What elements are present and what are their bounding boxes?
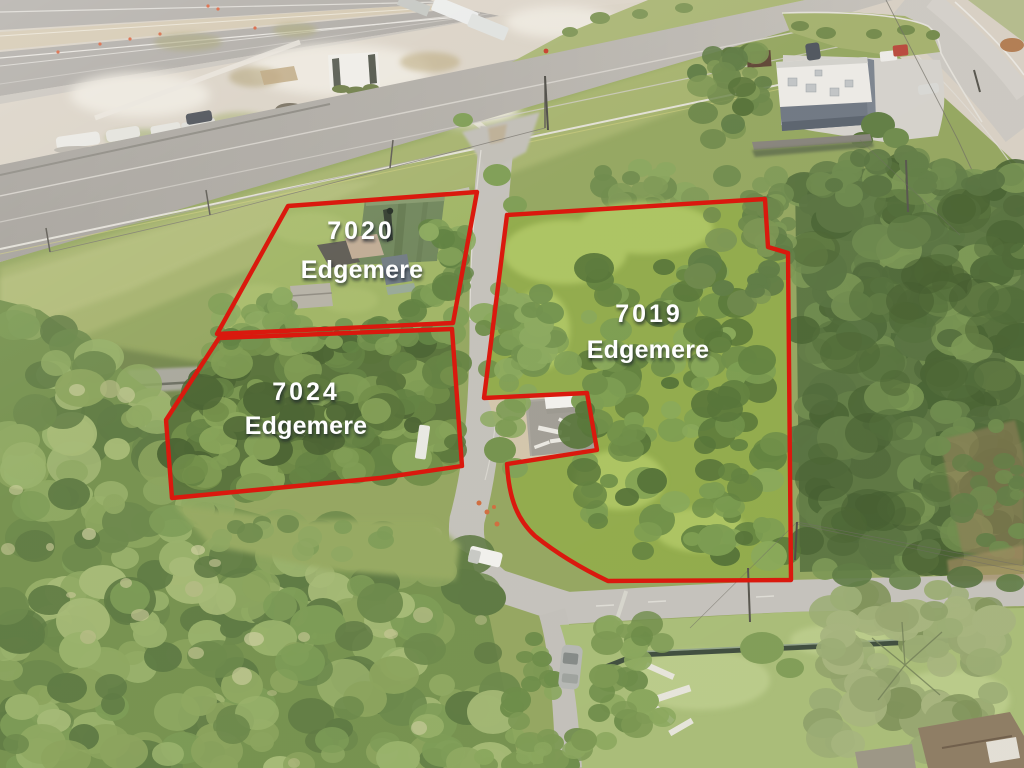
svg-text:7019: 7019 — [615, 300, 683, 328]
svg-text:7024: 7024 — [272, 378, 340, 406]
svg-text:Edgemere: Edgemere — [245, 412, 368, 440]
svg-text:Edgemere: Edgemere — [301, 256, 424, 284]
svg-text:Edgemere: Edgemere — [587, 336, 710, 364]
svg-text:7020: 7020 — [327, 217, 395, 245]
